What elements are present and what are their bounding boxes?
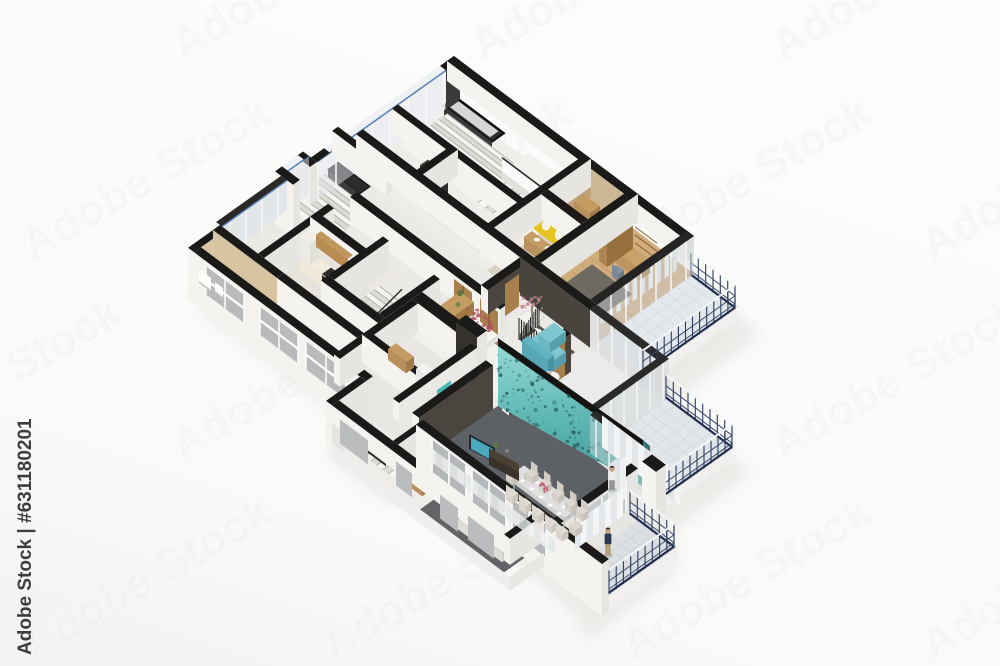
svg-text:Adobe Stock | #631180201: Adobe Stock | #631180201	[15, 418, 36, 655]
